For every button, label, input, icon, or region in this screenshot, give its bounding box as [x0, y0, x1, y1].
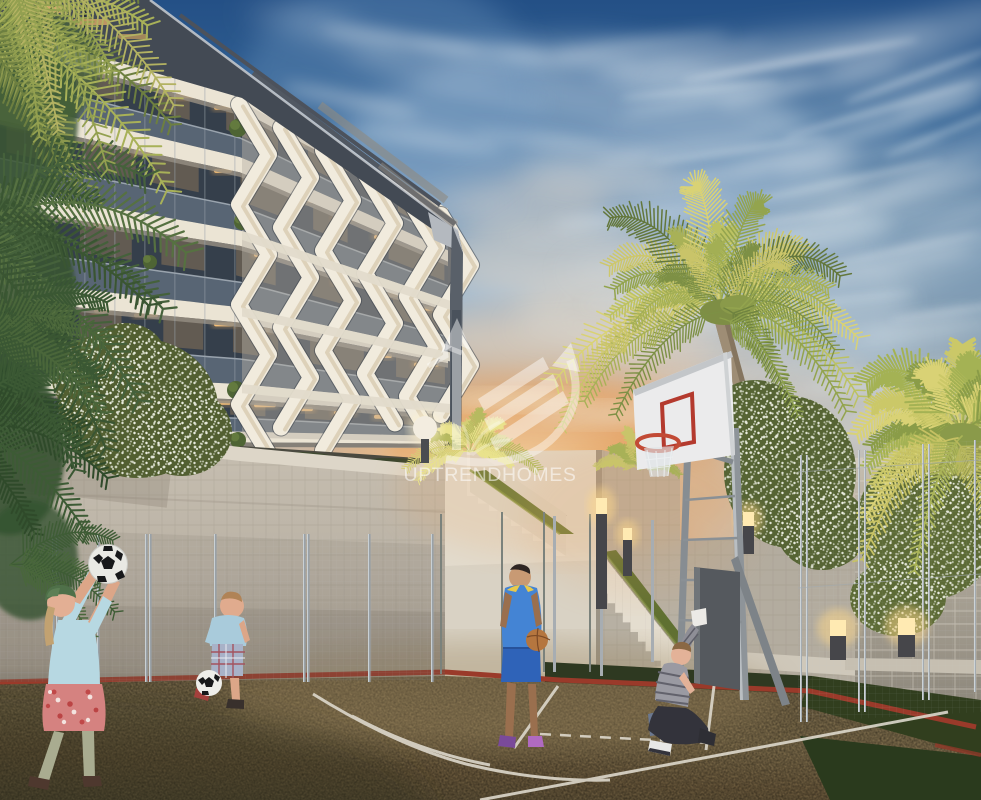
svg-text:UPTRENDHOMES: UPTRENDHOMES — [404, 464, 577, 486]
